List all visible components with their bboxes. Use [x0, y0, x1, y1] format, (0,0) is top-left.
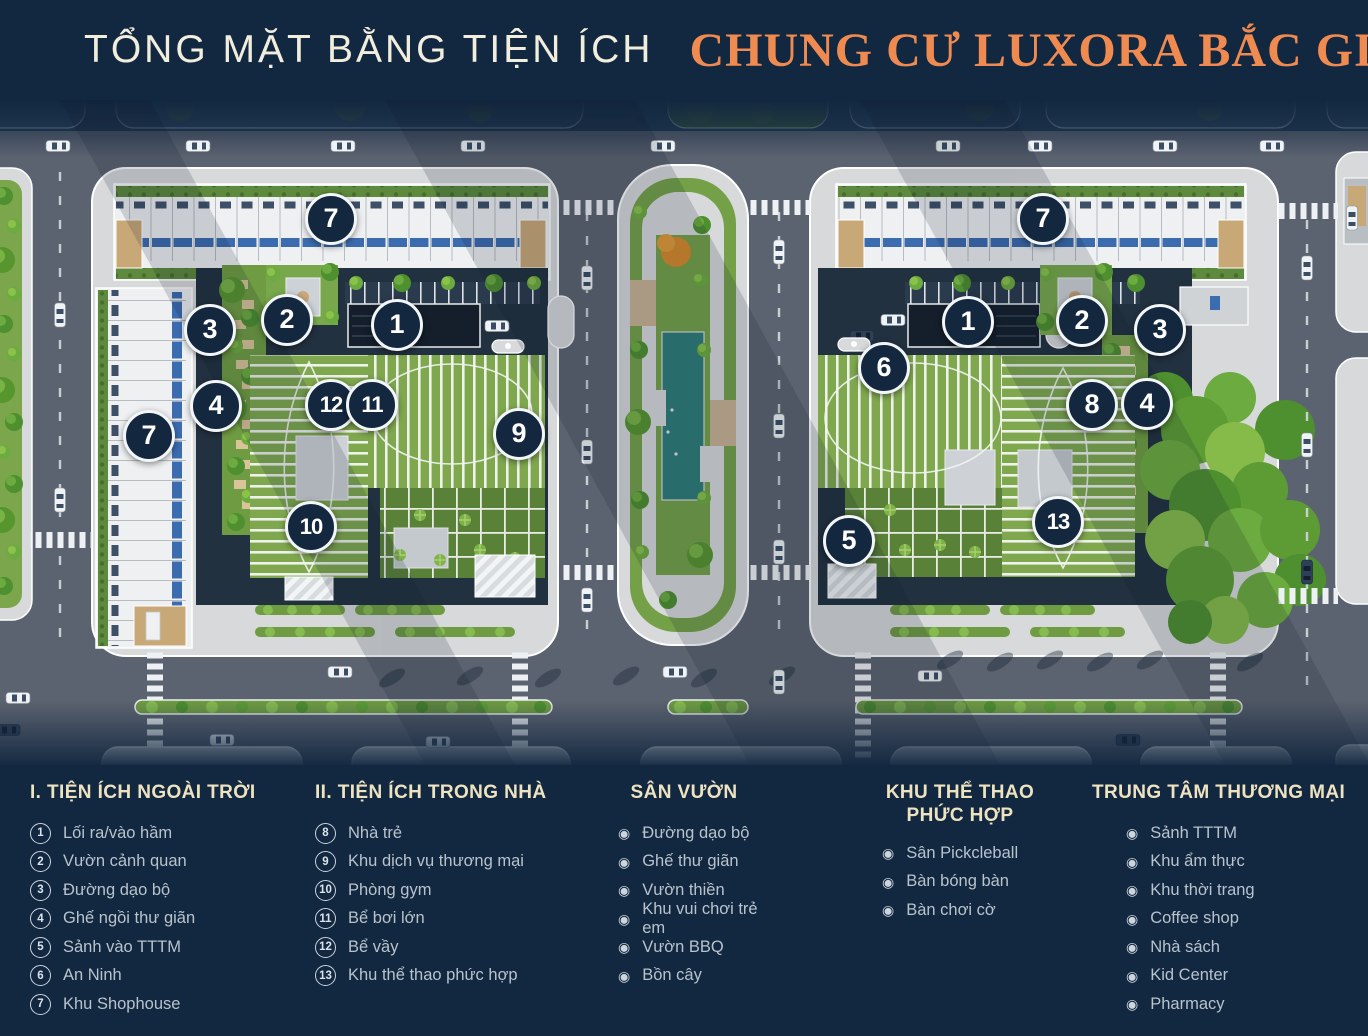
fisheye-bullet-icon: ◉	[882, 875, 894, 889]
legend-item: ◉Coffee shop	[1126, 905, 1360, 934]
legend-item-label: Sảnh TTTM	[1150, 824, 1237, 843]
fisheye-bullet-icon: ◉	[1126, 883, 1138, 897]
legend-item: ◉Khu ẩm thực	[1126, 848, 1360, 877]
legend-item-label: Vườn cảnh quan	[63, 852, 187, 871]
map-marker-2: 2	[1056, 295, 1108, 347]
number-circle-icon: 9	[315, 851, 336, 872]
legend-item: 4Ghế ngồi thư giãn	[30, 905, 288, 934]
number-circle-icon: 8	[315, 823, 336, 844]
legend-item: ◉Ghế thư giãn	[618, 848, 768, 877]
fisheye-bullet-icon: ◉	[1126, 940, 1138, 954]
fisheye-bullet-icon: ◉	[1126, 912, 1138, 926]
legend-title: KHU THỂ THAOPHỨC HỢP	[862, 781, 1058, 827]
legend-item-label: Ghế thư giãn	[642, 852, 738, 871]
map-marker-7: 7	[305, 193, 357, 245]
legend-item-label: Nhà trẻ	[348, 824, 402, 843]
legend-title: TRUNG TÂM THƯƠNG MẠI	[1092, 781, 1360, 804]
legend-indoor-amenities: II. TIỆN ÍCH TRONG NHÀ 8Nhà trẻ9Khu dịch…	[315, 781, 577, 990]
number-circle-icon: 5	[30, 937, 51, 958]
fisheye-bullet-icon: ◉	[1126, 826, 1138, 840]
fisheye-bullet-icon: ◉	[882, 903, 894, 917]
map-marker-1: 1	[371, 299, 423, 351]
map-marker-11: 11	[346, 379, 398, 431]
legend-item-label: Kid Center	[1150, 966, 1228, 985]
legend: I. TIỆN ÍCH NGOÀI TRỜI 1Lối ra/vào hầm2V…	[0, 765, 1368, 1036]
map-marker-6: 6	[858, 342, 910, 394]
legend-item-label: Đường dạo bộ	[642, 824, 749, 843]
legend-item: 8Nhà trẻ	[315, 819, 577, 848]
legend-item: 1Lối ra/vào hầm	[30, 819, 288, 848]
map-marker-1: 1	[942, 296, 994, 348]
fisheye-bullet-icon: ◉	[618, 883, 630, 897]
map-marker-9: 9	[493, 408, 545, 460]
fisheye-bullet-icon: ◉	[618, 826, 630, 840]
legend-list: ◉Đường dạo bộ◉Ghế thư giãn◉Vườn thiền◉Kh…	[600, 819, 768, 990]
legend-item-label: Khu ẩm thực	[1150, 852, 1245, 871]
map-marker-5: 5	[823, 515, 875, 567]
legend-list: 8Nhà trẻ9Khu dịch vụ thương mại10Phòng g…	[315, 819, 577, 990]
legend-item-label: Bàn chơi cờ	[906, 901, 996, 920]
legend-item: 12Bể vầy	[315, 933, 577, 962]
legend-item-label: Bàn bóng bàn	[906, 872, 1009, 891]
poster: TỔNG MẶT BẰNG TIỆN ÍCH CHUNG CƯ LUXORA B…	[0, 0, 1368, 1036]
legend-item-label: Khu thể thao phức hợp	[348, 966, 518, 985]
legend-item-label: Sảnh vào TTTM	[63, 938, 181, 957]
map-marker-3: 3	[184, 304, 236, 356]
page-header: TỔNG MẶT BẰNG TIỆN ÍCH CHUNG CƯ LUXORA B…	[0, 0, 1368, 100]
fisheye-bullet-icon: ◉	[1126, 855, 1138, 869]
legend-item: ◉Nhà sách	[1126, 933, 1360, 962]
legend-item: 13Khu thể thao phức hợp	[315, 962, 577, 991]
legend-item-label: Pharmacy	[1150, 995, 1224, 1014]
legend-item: 2Vườn cảnh quan	[30, 848, 288, 877]
legend-title: II. TIỆN ÍCH TRONG NHÀ	[315, 781, 577, 804]
map-marker-10: 10	[285, 501, 337, 553]
site-plan-render	[0, 100, 1368, 765]
legend-item-label: Bồn cây	[642, 966, 702, 985]
legend-item-label: Nhà sách	[1150, 938, 1220, 957]
legend-item: ◉Khu vui chơi trẻ em	[618, 905, 768, 934]
legend-item: 10Phòng gym	[315, 876, 577, 905]
legend-item: ◉Bồn cây	[618, 962, 768, 991]
site-plan-map: 72314712119107123684513	[0, 100, 1368, 765]
map-marker-3: 3	[1134, 304, 1186, 356]
legend-item-label: Lối ra/vào hầm	[63, 824, 172, 843]
legend-item-label: Khu vui chơi trẻ em	[642, 900, 768, 938]
fisheye-bullet-icon: ◉	[618, 969, 630, 983]
legend-title: SÂN VƯỜN	[600, 781, 768, 804]
legend-item-label: An Ninh	[63, 966, 122, 985]
legend-item: ◉Kid Center	[1126, 962, 1360, 991]
legend-item: ◉Sảnh TTTM	[1126, 819, 1360, 848]
number-circle-icon: 4	[30, 908, 51, 929]
legend-shopping-mall: TRUNG TÂM THƯƠNG MẠI ◉Sảnh TTTM◉Khu ẩm t…	[1092, 781, 1360, 1019]
legend-outdoor-amenities: I. TIỆN ÍCH NGOÀI TRỜI 1Lối ra/vào hầm2V…	[30, 781, 288, 1019]
number-circle-icon: 2	[30, 851, 51, 872]
legend-item: 9Khu dịch vụ thương mại	[315, 848, 577, 877]
legend-item: ◉Bàn chơi cờ	[882, 896, 1058, 925]
legend-item: ◉Bàn bóng bàn	[882, 868, 1058, 897]
fisheye-bullet-icon: ◉	[618, 912, 630, 926]
legend-item-label: Đường dạo bộ	[63, 881, 170, 900]
legend-item: ◉Sân Pickcleball	[882, 839, 1058, 868]
fisheye-bullet-icon: ◉	[1126, 969, 1138, 983]
legend-sports-complex: KHU THỂ THAOPHỨC HỢP ◉Sân Pickcleball◉Bà…	[862, 781, 1058, 925]
map-marker-4: 4	[1121, 378, 1173, 430]
legend-title: I. TIỆN ÍCH NGOÀI TRỜI	[30, 781, 288, 804]
legend-list: ◉Sân Pickcleball◉Bàn bóng bàn◉Bàn chơi c…	[862, 839, 1058, 925]
legend-item: 7Khu Shophouse	[30, 990, 288, 1019]
fisheye-bullet-icon: ◉	[618, 855, 630, 869]
legend-item-label: Coffee shop	[1150, 909, 1239, 928]
legend-item-label: Vườn thiền	[642, 881, 724, 900]
number-circle-icon: 3	[30, 880, 51, 901]
legend-list: ◉Sảnh TTTM◉Khu ẩm thực◉Khu thời trang◉Co…	[1092, 819, 1360, 1019]
number-circle-icon: 7	[30, 994, 51, 1015]
legend-item: 11Bể bơi lớn	[315, 905, 577, 934]
legend-item-label: Bể vầy	[348, 938, 398, 957]
map-marker-4: 4	[190, 380, 242, 432]
legend-item: ◉Khu thời trang	[1126, 876, 1360, 905]
legend-item-label: Bể bơi lớn	[348, 909, 425, 928]
legend-item: ◉Pharmacy	[1126, 990, 1360, 1019]
legend-item-label: Vườn BBQ	[642, 938, 723, 957]
fisheye-bullet-icon: ◉	[1126, 997, 1138, 1011]
map-marker-7: 7	[1017, 193, 1069, 245]
map-marker-7: 7	[123, 410, 175, 462]
number-circle-icon: 11	[315, 908, 336, 929]
number-circle-icon: 12	[315, 937, 336, 958]
legend-item-label: Khu thời trang	[1150, 881, 1254, 900]
legend-item-label: Sân Pickcleball	[906, 844, 1018, 863]
legend-list: 1Lối ra/vào hầm2Vườn cảnh quan3Đường dạo…	[30, 819, 288, 1019]
map-marker-8: 8	[1066, 379, 1118, 431]
legend-item: ◉Đường dạo bộ	[618, 819, 768, 848]
legend-item-label: Khu Shophouse	[63, 995, 180, 1014]
fisheye-bullet-icon: ◉	[882, 846, 894, 860]
legend-item: 3Đường dạo bộ	[30, 876, 288, 905]
fisheye-bullet-icon: ◉	[618, 940, 630, 954]
legend-item: 6An Ninh	[30, 962, 288, 991]
legend-item: 5Sảnh vào TTTM	[30, 933, 288, 962]
number-circle-icon: 1	[30, 823, 51, 844]
number-circle-icon: 6	[30, 965, 51, 986]
project-name: CHUNG CƯ LUXORA BẮC GIANG	[689, 23, 1368, 78]
legend-item-label: Khu dịch vụ thương mại	[348, 852, 524, 871]
legend-garden: SÂN VƯỜN ◉Đường dạo bộ◉Ghế thư giãn◉Vườn…	[600, 781, 768, 990]
legend-item-label: Ghế ngồi thư giãn	[63, 909, 195, 928]
legend-item-label: Phòng gym	[348, 881, 431, 900]
number-circle-icon: 13	[315, 965, 336, 986]
number-circle-icon: 10	[315, 880, 336, 901]
map-marker-2: 2	[261, 294, 313, 346]
map-marker-13: 13	[1032, 496, 1084, 548]
page-title: TỔNG MẶT BẰNG TIỆN ÍCH	[84, 28, 653, 72]
